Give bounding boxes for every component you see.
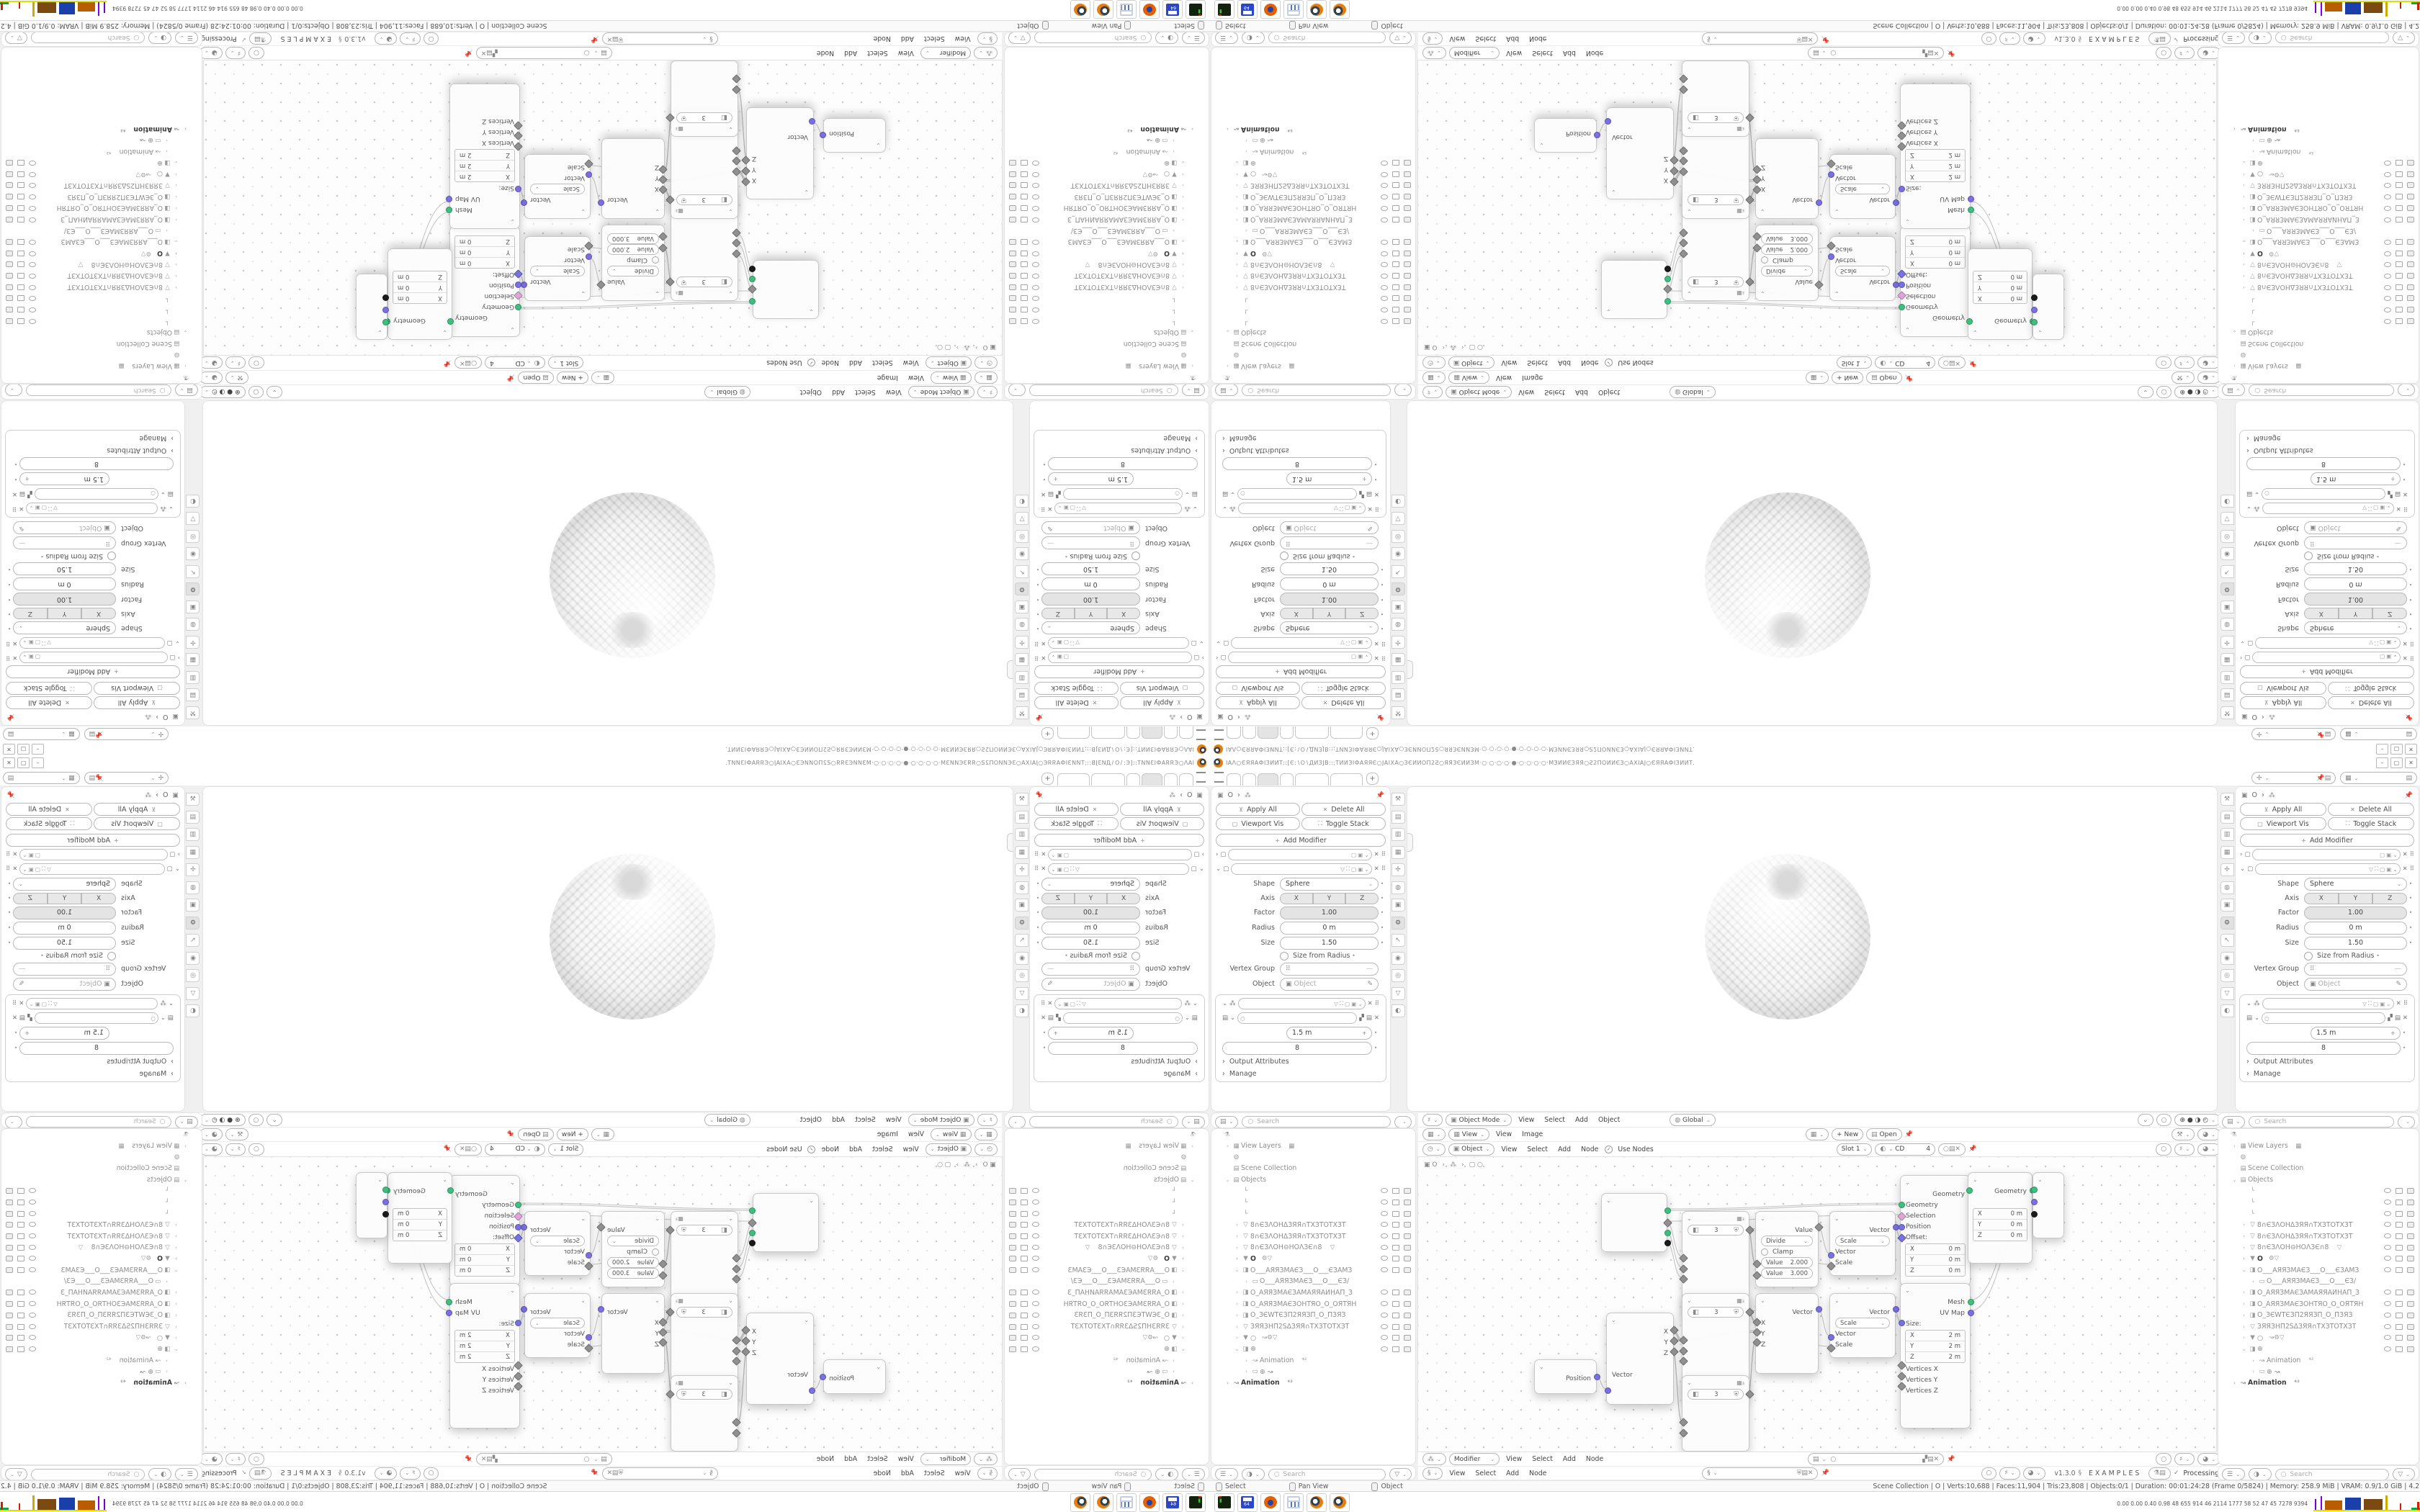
node-socket-green[interactable] [750, 1207, 756, 1214]
render-hide-icon[interactable] [6, 1324, 13, 1330]
viewport-hide-icon[interactable] [1392, 194, 1399, 199]
outliner-row[interactable]: ›▼○↝⚙▽ [1, 1332, 202, 1344]
viewport-hide-icon[interactable] [17, 239, 24, 245]
properties-tab-4-icon[interactable]: ✢ [1391, 863, 1405, 876]
apply-all-button[interactable]: ⊻Apply All [1216, 803, 1300, 816]
close-button[interactable]: ✕ [3, 744, 15, 755]
menu-node[interactable]: Node [817, 49, 834, 57]
hide-eye-icon[interactable] [2384, 194, 2391, 199]
outliner-search-input[interactable]: ○Search [1034, 32, 1152, 44]
manage-section[interactable]: ›Manage [1036, 432, 1202, 444]
node-group-slot[interactable]: ⌄⁂▽⛶▢▣⌄✕⠿ [1218, 996, 1384, 1011]
integer-node-3[interactable]: ⌄▦₃◧3⛨ [1682, 60, 1749, 137]
hamburger-menu-icon[interactable] [1214, 772, 1224, 783]
display-mode-dropdown[interactable]: ▤⌄ [1182, 384, 1205, 397]
sidebar-collapse-handle[interactable] [1007, 833, 1013, 852]
properties-tab-2-icon[interactable]: ▥ [2220, 828, 2234, 841]
delete-all-button[interactable]: ✕Delete All [2328, 696, 2414, 709]
orientation-dropdown[interactable]: ◍ Global⌄ [704, 386, 750, 398]
node-vector-table[interactable]: X0 mY0 mZ0 m [454, 1243, 515, 1277]
outliner-search-input[interactable]: ○Search [31, 1469, 145, 1480]
node-socket-black[interactable] [750, 266, 756, 273]
orientation-dropdown[interactable]: ◍ Global⌄ [704, 1114, 750, 1126]
menu-add[interactable]: Add [849, 359, 862, 367]
outliner-search-input[interactable]: ○Search [2275, 32, 2390, 44]
modifier-slot-row[interactable]: ›▢▢▣⌄✕⠿ [1211, 650, 1390, 665]
node-vector-table[interactable]: X2 mY2 mZ2 m [1905, 1330, 1966, 1363]
manage-section[interactable]: ›Manage [2242, 432, 2412, 444]
render-hide-icon[interactable] [2407, 1188, 2414, 1194]
pin-icon[interactable]: 📌 [507, 374, 515, 382]
node-vector-table[interactable]: X2 mY2 mZ2 m [1905, 149, 1966, 182]
snap-toggle[interactable]: ♯⌄ [2174, 357, 2195, 369]
size-field[interactable]: 1.50 [13, 937, 116, 950]
properties-tab-10-icon[interactable]: ◎ [187, 969, 200, 982]
group-output-node[interactable]: ⌄ [2033, 1172, 2064, 1238]
hide-eye-icon[interactable] [29, 217, 36, 222]
outliner-row[interactable]: ›↝Animation⁴² [1, 1355, 202, 1367]
properties-tab-8-icon[interactable]: ↖ [187, 934, 200, 947]
editor-type-button[interactable]: ▦⌄ [1422, 372, 1446, 384]
node-clamp-radio[interactable]: Clamp [1756, 1246, 1818, 1257]
node-vector-table[interactable]: X0 mY0 mZ0 m [1905, 235, 1966, 269]
hide-eye-icon[interactable] [1381, 1290, 1388, 1295]
viewport-hide-icon[interactable] [2396, 284, 2403, 290]
add-modifier-button[interactable]: +Add Modifier [6, 665, 180, 678]
properties-tab-4-icon[interactable]: ✢ [2220, 863, 2234, 876]
properties-tab-9-icon[interactable]: ◉ [1016, 952, 1029, 965]
hide-eye-icon[interactable] [29, 296, 36, 301]
delete-all-button[interactable]: ✕Delete All [1034, 803, 1119, 816]
menu-node[interactable]: Node [1586, 49, 1603, 57]
hide-eye-icon[interactable] [29, 1324, 36, 1329]
outliner-row[interactable]: └ [2218, 1185, 2419, 1197]
menu-view[interactable]: View [886, 1116, 902, 1124]
outliner-row[interactable]: ⌄◨⊕ [1211, 1344, 1415, 1355]
collapse-chevron-icon[interactable]: ⌄ [581, 209, 586, 215]
image-id-field[interactable]: ◐⌄ ⅭD4 [1875, 1143, 1935, 1156]
properties-tab-4-icon[interactable]: ✢ [1016, 863, 1029, 876]
properties-tab-2-icon[interactable]: ▥ [187, 671, 200, 684]
hide-eye-icon[interactable] [1381, 1301, 1388, 1306]
outliner-row[interactable]: ›◨О_ЗЄWТЄЗП2ЯЯЗП_О_ПЗЯЗ [1, 1310, 202, 1321]
outliner-row[interactable]: ›▽8∩ЄЗΛОНΔЗЯЯ∩ТХЗТОТХЗТ [2218, 1220, 2419, 1231]
pin-icon[interactable]: 📌 [1821, 35, 1829, 42]
collapse-chevron-icon[interactable]: ⌄ [728, 291, 733, 297]
translate-geometry-node[interactable]: ⌄GeometryX0 mY0 mZ0 m [1968, 248, 2033, 340]
collapse-chevron-icon[interactable]: ⌄ [510, 1287, 515, 1294]
outliner-row[interactable]: ⌄◨О___АЯЯЗМАЄЗ___О___ЄЗАМЗ [1005, 236, 1209, 248]
render-hide-icon[interactable] [1009, 1188, 1016, 1194]
modifier-slot-row[interactable]: ⌄▢▽⛶▢▣⌄✕⠿ [1030, 862, 1209, 876]
viewport-hide-icon[interactable] [1392, 1233, 1399, 1239]
radius-field[interactable]: 0 m [2304, 578, 2407, 591]
orientation-dropdown[interactable]: ◍ Global⌄ [1670, 386, 1715, 398]
position-node[interactable]: ⌄Position [823, 118, 886, 153]
vector-scale-node-2[interactable]: ⌄VectorScale⌄VectorScale [524, 1293, 591, 1358]
properties-tab-3-icon[interactable]: ▦ [1391, 654, 1405, 667]
render-hide-icon[interactable] [2407, 1245, 2414, 1251]
add-workspace-button[interactable]: + [1366, 727, 1379, 739]
outliner-row[interactable]: └ [1, 1185, 202, 1197]
viewport-vis-button[interactable]: ▢Viewport Vis [1120, 682, 1204, 695]
object-picker-field[interactable]: ▣ Object✎ [1280, 978, 1379, 991]
outliner-row[interactable]: ›▽8∩ЄЗΛОНΔЗЯЯ∩ТХЗТОТХЗТ [1, 1220, 202, 1231]
display-mode-dropdown[interactable]: ☰⌄ [1182, 32, 1205, 44]
collapse-chevron-icon[interactable]: ⌄ [1834, 1215, 1839, 1222]
apply-all-button[interactable]: ⊻Apply All [94, 696, 180, 709]
outliner-row[interactable]: ›↝Animation⁴² [1211, 1377, 1415, 1389]
properties-tab-9-icon[interactable]: ◉ [1391, 952, 1405, 965]
properties-tab-1-icon[interactable]: ▤ [187, 811, 200, 824]
node-socket-green[interactable] [1899, 1202, 1905, 1208]
outliner-row[interactable]: ›▭⊕ ↝ [1005, 135, 1209, 146]
viewport-3d[interactable] [1407, 787, 2217, 1111]
render-hide-icon[interactable] [1404, 295, 1411, 301]
image-mode-dropdown[interactable]: ▦ View⌄ [1448, 372, 1489, 384]
node-id-field[interactable]: ◧3⛨ [1688, 1389, 1744, 1400]
viewport-hide-icon[interactable] [1392, 261, 1399, 267]
properties-tab-7-icon[interactable]: ⚙ [1391, 583, 1405, 596]
slot-dropdown[interactable]: Slot 1⌄ [1837, 1143, 1873, 1156]
viewport-hide-icon[interactable] [2396, 1188, 2403, 1194]
use-nodes-checkbox[interactable]: ✓ [807, 1146, 815, 1153]
node-operation-dropdown[interactable]: Divide⌄ [1761, 1236, 1813, 1246]
output-attributes-section[interactable]: ›Output Attributes [2242, 444, 2412, 456]
voxel-sphere-object[interactable] [550, 492, 715, 658]
axis-segmented-buttons[interactable]: XYZ [2304, 608, 2407, 620]
axis-segmented-buttons[interactable]: XYZ [1041, 608, 1140, 620]
outliner-row[interactable]: ⚗ [1211, 1129, 1415, 1140]
open-image-button[interactable]: ▤ Open [518, 1128, 553, 1140]
filter-dropdown[interactable]: ▽⌄ [2393, 32, 2415, 44]
output-attributes-section[interactable]: ›Output Attributes [1218, 444, 1384, 456]
factor-slider[interactable]: 1.00 [1041, 593, 1140, 606]
outliner-row[interactable]: ▤Scene Collection [2218, 1163, 2419, 1174]
viewport-hide-icon[interactable] [2396, 1313, 2403, 1318]
delete-all-button[interactable]: ✕Delete All [1301, 696, 1386, 709]
viewport-vis-button[interactable]: ▢Viewport Vis [1216, 817, 1300, 830]
editor-circle-button[interactable]: ○ [2156, 1143, 2172, 1156]
node-context-dropdown[interactable]: ▣ Object⌄ [1448, 1143, 1495, 1156]
hide-eye-icon[interactable] [1032, 1256, 1039, 1261]
outliner-row[interactable]: ›↝Animation⁴² [2218, 123, 2419, 135]
outliner-row[interactable]: ⌄◨⊕ [2218, 157, 2419, 168]
outliner-search-input[interactable]: ○Search [1029, 1116, 1178, 1128]
hide-eye-icon[interactable] [29, 1313, 36, 1318]
mode-dropdown[interactable]: ▣ Object Mode⌄ [908, 386, 974, 398]
hide-eye-icon[interactable] [1032, 183, 1039, 188]
menu-add[interactable]: Add [1575, 388, 1588, 396]
properties-tab-11-icon[interactable]: ▽ [187, 513, 200, 526]
menu-add[interactable]: Add [1506, 1470, 1519, 1477]
viewport-hide-icon[interactable] [17, 261, 24, 267]
node-id-field[interactable]: ◧3⛨ [1688, 1225, 1744, 1236]
filter-dropdown[interactable]: ⌄ [1394, 1116, 1412, 1128]
outliner-search-input[interactable]: ○Search [1268, 32, 1386, 44]
vertex-group-field[interactable]: ⠿— [1280, 537, 1379, 550]
hide-eye-icon[interactable] [29, 262, 36, 267]
properties-tab-7-icon[interactable]: ⚙ [1016, 583, 1029, 596]
viewport-hide-icon[interactable] [1392, 182, 1399, 188]
taskbar-app-terminal[interactable]: ▮ [1214, 1493, 1234, 1512]
outliner-row[interactable]: ›▼O⚙▽ [1211, 1254, 1415, 1265]
outliner-row[interactable]: └ [1005, 1197, 1209, 1208]
display-mode-dropdown[interactable]: ☰⌄ [2222, 32, 2245, 44]
viewport-hide-icon[interactable] [1392, 1290, 1399, 1295]
modifier-dropdown[interactable]: Modifier⌄ [920, 47, 971, 59]
editor-circle-button[interactable]: ○ [1981, 33, 1997, 45]
taskbar-app-floppy-disk[interactable]: 64 [1237, 1, 1258, 19]
vertex-group-field[interactable]: ⠿— [1280, 963, 1379, 976]
outliner-row[interactable]: └ [1005, 1185, 1209, 1197]
collapse-chevron-icon[interactable]: ⌄ [1834, 291, 1839, 297]
properties-tab-10-icon[interactable]: ◎ [2220, 530, 2234, 543]
properties-tab-9-icon[interactable]: ◉ [1391, 548, 1405, 561]
hide-eye-icon[interactable] [1381, 274, 1388, 279]
node-socket-green[interactable] [750, 1230, 756, 1236]
size-field[interactable]: 1.50 [1041, 937, 1140, 950]
render-hide-icon[interactable] [1009, 194, 1016, 199]
outliner-row[interactable]: ›▼○↝⚙▽ [1005, 1332, 1209, 1344]
properties-tab-10-icon[interactable]: ◎ [1016, 969, 1029, 982]
vertex-group-field[interactable]: ⠿— [13, 963, 116, 976]
menu-view[interactable]: View [955, 1470, 971, 1477]
node-group-id[interactable]: ▤⌄○▞▤✕ [1036, 487, 1202, 501]
outliner-row[interactable]: ◍ [1, 1151, 202, 1163]
fake-user-buttons[interactable]: ○▤✕ [454, 357, 482, 369]
collapse-chevron-icon[interactable]: ⌄ [1611, 189, 1616, 196]
node-tree-id-field[interactable]: §⌄⛨▤✕ [602, 1467, 718, 1480]
workspace-tab[interactable] [1126, 726, 1140, 739]
combine-xyz-node[interactable]: ⌄VectorXYZ [1755, 1293, 1819, 1374]
new-image-button[interactable]: + New [557, 1128, 588, 1140]
viewport-hide-icon[interactable] [2396, 251, 2403, 256]
math-divide-node[interactable]: ⌄ValueDivide⌄ClampValue2.000Value3.000 [601, 225, 665, 301]
properties-tab-5-icon[interactable]: ◍ [2220, 618, 2234, 631]
workspace-tab[interactable] [1227, 773, 1241, 786]
node-socket-purple[interactable] [1816, 1306, 1822, 1313]
properties-tab-11-icon[interactable]: ▽ [2220, 513, 2234, 526]
viewport-hide-icon[interactable] [17, 1222, 24, 1228]
radius-field[interactable]: 0 m [1280, 578, 1379, 591]
render-hide-icon[interactable] [2407, 1211, 2414, 1217]
hide-eye-icon[interactable] [2384, 307, 2391, 312]
workspace-tab[interactable] [1142, 726, 1162, 739]
pin-icon[interactable]: 📌 [7, 714, 15, 721]
hide-eye-icon[interactable] [2384, 296, 2391, 301]
outliner-row[interactable]: ›◨О_АЯЯЗМАЄЗАМАЯЯАИНАП_З [1211, 214, 1415, 225]
factor-slider[interactable]: 1.00 [2304, 593, 2407, 606]
output-attributes-section[interactable]: ›Output Attributes [1218, 1056, 1384, 1068]
properties-tab-8-icon[interactable]: ↖ [1016, 934, 1029, 947]
properties-tab-7-icon[interactable]: ⚙ [187, 583, 200, 596]
viewport-hide-icon[interactable] [1021, 273, 1028, 279]
menu-add[interactable]: Add [901, 1470, 914, 1477]
collapse-chevron-icon[interactable]: ⌄ [442, 330, 447, 336]
render-hide-icon[interactable] [6, 1222, 13, 1228]
menu-object[interactable]: Object [800, 1116, 822, 1124]
hide-eye-icon[interactable] [1032, 307, 1039, 312]
node-tree-id-field[interactable]: §⌄⛨▤✕ [602, 33, 718, 45]
node-vector-table[interactable]: X0 mY0 mZ0 m [454, 235, 515, 269]
filter-dropdown[interactable]: ⌄ [1394, 384, 1412, 397]
render-hide-icon[interactable] [6, 182, 13, 188]
outliner-row[interactable]: ›▦View Layers▦ [1211, 361, 1415, 372]
viewport-hide-icon[interactable] [1021, 1233, 1028, 1239]
mode-icon-dropdown[interactable]: ◑⌄ [148, 1468, 171, 1480]
editor-circle-button[interactable]: ○ [248, 47, 264, 59]
pin-icon[interactable]: 📌 [591, 35, 599, 42]
render-hide-icon[interactable] [2407, 182, 2414, 188]
workspace-tab[interactable] [1164, 726, 1178, 739]
hide-eye-icon[interactable] [1032, 262, 1039, 267]
filter-dropdown[interactable]: ▽⌄ [1008, 1468, 1031, 1480]
collapse-chevron-icon[interactable]: ⌄ [1606, 309, 1611, 315]
hide-eye-icon[interactable] [2384, 1233, 2391, 1238]
outliner-row[interactable]: ›◨О_ЗЄWТЄЗП2ЯЯЗП_О_ПЗЯЗ [1, 191, 202, 202]
node-vector-table[interactable]: X0 mY0 mZ0 m [393, 1208, 447, 1241]
properties-tab-6-icon[interactable]: ▣ [1391, 899, 1405, 912]
taskbar-app-firefox[interactable] [1139, 1, 1160, 19]
hide-eye-icon[interactable] [2384, 161, 2391, 166]
hide-eye-icon[interactable] [29, 172, 36, 177]
outliner-row[interactable]: ›▼○↝⚙▽ [1005, 168, 1209, 180]
collapse-chevron-icon[interactable]: ⌄ [1760, 1215, 1765, 1222]
example-buttons[interactable]: ⚗▤ [2148, 33, 2171, 45]
collapse-chevron-icon[interactable]: ⌄ [728, 1380, 733, 1386]
hide-eye-icon[interactable] [1381, 1188, 1388, 1193]
editor-circle-button[interactable]: ○ [2156, 1453, 2172, 1465]
outliner-row[interactable]: ›▽ЗЯЯЗНП2ЅΔЗЯЯ∩ТХЗТОТХЗТ [2218, 1321, 2419, 1333]
properties-tab-7-icon[interactable]: ⚙ [1016, 917, 1029, 930]
menu-view[interactable]: View [886, 388, 902, 396]
collapse-chevron-icon[interactable]: ⌄ [581, 1297, 586, 1304]
outliner-row[interactable]: ›▼O⚙▽ [2218, 248, 2419, 259]
node-id-field[interactable]: ◧3⛨ [676, 1307, 732, 1318]
viewport-hide-icon[interactable] [2396, 1233, 2403, 1239]
pin-icon[interactable]: 📌 [2405, 714, 2413, 721]
filter-dropdown[interactable]: ⌄ [2398, 384, 2415, 397]
hide-eye-icon[interactable] [1032, 274, 1039, 279]
modifier-slot-row[interactable]: ›▢▢▣⌄✕⠿ [1211, 847, 1390, 862]
axis-segmented-buttons[interactable]: XYZ [13, 608, 116, 620]
viewport-vis-button[interactable]: ▢Viewport Vis [94, 682, 180, 695]
properties-tab-5-icon[interactable]: ◍ [2220, 881, 2234, 894]
taskbar-app-firefox[interactable] [1260, 1493, 1281, 1512]
outliner-row[interactable]: ›◨О_ЗЄWТЄЗП2ЯЯЗП_О_ПЗЯЗ [2218, 191, 2419, 202]
object-picker-field[interactable]: ▣ Object✎ [13, 978, 116, 991]
output-attributes-section[interactable]: ›Output Attributes [8, 1056, 178, 1068]
collapse-chevron-icon[interactable]: ⌄ [804, 189, 809, 196]
subpanel-count-field[interactable]: 8 [2246, 458, 2401, 471]
properties-tab-2-icon[interactable]: ▥ [2220, 671, 2234, 684]
collapse-chevron-icon[interactable]: ⌄ [655, 1215, 660, 1222]
viewport-hide-icon[interactable] [1392, 251, 1399, 256]
collapse-chevron-icon[interactable]: ⌄ [1606, 1197, 1611, 1204]
set-position-node[interactable]: ⌄GeometryGeometrySelectionPositionOffset… [449, 226, 520, 337]
viewport-hide-icon[interactable] [1392, 318, 1399, 324]
properties-tab-0-icon[interactable]: ⚒ [1016, 793, 1029, 806]
hide-eye-icon[interactable] [1032, 161, 1039, 166]
workspace-tab[interactable] [1091, 726, 1125, 739]
subpanel-value-field[interactable]: 1.5 m🕂 [2311, 473, 2401, 486]
node-group-id[interactable]: ▤⌄○▞▤✕ [2242, 487, 2412, 501]
menu-image[interactable]: Image [877, 1130, 898, 1138]
outliner-row[interactable]: └ [1, 1197, 202, 1208]
outliner-row[interactable]: ›▽ЗЯЯЗНП2ЅΔЗЯЯ∩ТХЗТОТХЗТ [2218, 180, 2419, 192]
viewport-hide-icon[interactable] [2396, 1335, 2403, 1341]
properties-tab-3-icon[interactable]: ▦ [2220, 654, 2234, 667]
translate-geometry-node[interactable]: ⌄GeometryX0 mY0 mZ0 m [387, 248, 452, 340]
sidebar-collapse-handle[interactable] [1407, 833, 1413, 852]
outliner-row[interactable]: ›◨О_АЯЯЗМАЄЗАМАЯЯАИНАП_З [1005, 1287, 1209, 1299]
outliner-row[interactable]: ›▼○↝⚙▽ [2218, 168, 2419, 180]
hide-eye-icon[interactable] [2384, 1290, 2391, 1295]
fake-user-buttons[interactable]: ○▤✕ [1938, 357, 1966, 369]
add-workspace-button[interactable]: + [1041, 773, 1054, 785]
collapse-chevron-icon[interactable]: ⌄ [728, 1297, 733, 1304]
vertex-group-field[interactable]: ⠿— [2304, 963, 2407, 976]
object-info-node[interactable]: ⌄ [753, 1193, 819, 1252]
render-hide-icon[interactable] [1009, 1301, 1016, 1307]
outliner-search-input[interactable]: ○Search [2275, 1469, 2390, 1480]
render-hide-icon[interactable] [2407, 1324, 2414, 1330]
display-mode-dropdown[interactable]: ▤⌄ [1215, 1116, 1238, 1128]
render-hide-icon[interactable] [6, 205, 13, 211]
viewport-hide-icon[interactable] [17, 295, 24, 301]
workspace-tab[interactable] [1242, 773, 1256, 786]
node-value-field[interactable]: Value2.000 [1761, 244, 1813, 255]
viewport-hide-icon[interactable] [1392, 1222, 1399, 1228]
minimize-button[interactable]: – [32, 757, 44, 768]
hide-eye-icon[interactable] [1381, 251, 1388, 256]
outliner-row[interactable]: ›◨О_АЯЯЗМАЄЗОНТЯО_О_ОЯТЯН [1005, 1298, 1209, 1310]
render-hide-icon[interactable] [6, 295, 13, 301]
view-layer-selector[interactable]: ▦⌄▤ [3, 728, 80, 740]
pin-icon[interactable]: 📌 [1968, 1146, 1976, 1153]
manage-section[interactable]: ›Manage [8, 432, 178, 444]
outliner-search-input[interactable]: ○Search [1268, 1469, 1386, 1480]
factor-slider[interactable]: 1.00 [13, 593, 116, 606]
outliner-row[interactable]: ›▽ЗЯЯЗНП2ЅΔЗЯЯ∩ТХЗТОТХЗТ [1211, 1321, 1415, 1333]
outliner-row[interactable]: ›◨О_АЯЯЗМАЄЗАМАЯЯАИНАП_З [2218, 214, 2419, 225]
radius-field[interactable]: 0 m [13, 578, 116, 591]
pin-icon[interactable]: 📌 [1036, 714, 1044, 721]
subpanel-value-field[interactable]: 1.5 m🕂 [19, 473, 109, 486]
menu-view[interactable]: View [1506, 49, 1522, 57]
pin-icon[interactable]: 📌 [444, 1146, 452, 1153]
node-id-field[interactable]: ◧3⛨ [676, 194, 732, 205]
hide-eye-icon[interactable] [29, 1200, 36, 1205]
outliner-row[interactable]: ›▦View Layers▦ [2218, 361, 2419, 372]
render-hide-icon[interactable] [1009, 273, 1016, 279]
taskbar-app-blender[interactable] [1070, 1, 1090, 19]
render-hide-icon[interactable] [2407, 273, 2414, 279]
collapse-chevron-icon[interactable]: ⌄ [876, 143, 881, 149]
menu-view[interactable]: View [898, 1455, 914, 1463]
object-info-node[interactable]: ⌄ [753, 260, 819, 319]
properties-tab-3-icon[interactable]: ▦ [187, 654, 200, 667]
render-hide-icon[interactable] [2407, 160, 2414, 166]
properties-tab-12-icon[interactable]: ◐ [2220, 495, 2234, 508]
viewport-hide-icon[interactable] [17, 1188, 24, 1194]
editor-circle-button[interactable]: ○ [2156, 47, 2172, 59]
menu-select[interactable]: Select [1527, 1146, 1548, 1153]
taskbar-app-floppy-disk[interactable]: 64 [1162, 1493, 1183, 1512]
render-hide-icon[interactable] [6, 1200, 13, 1205]
editor-type-button[interactable]: ◷⌄ [974, 357, 998, 369]
